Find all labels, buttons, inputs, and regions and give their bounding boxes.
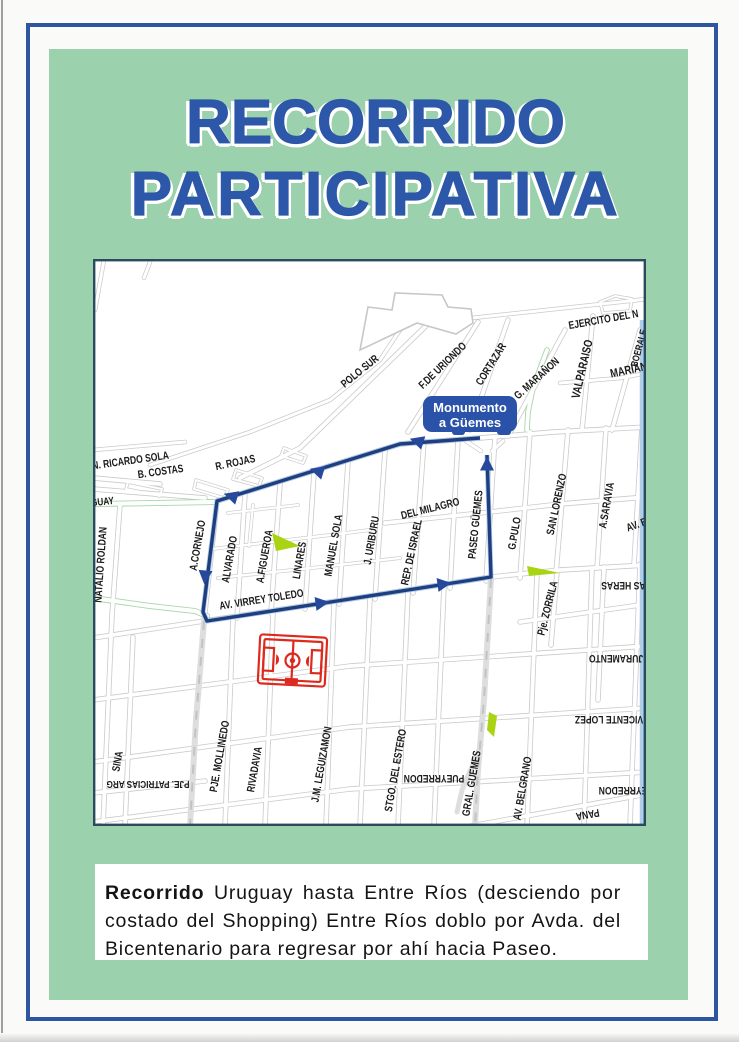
svg-text:PUEYRREDON: PUEYRREDON xyxy=(404,772,465,784)
svg-text:CORTAZAR: CORTAZAR xyxy=(474,341,510,388)
svg-text:STGO. DEL ESTERO: STGO. DEL ESTERO xyxy=(383,728,410,813)
svg-text:G. MARAÑON: G. MARAÑON xyxy=(512,356,562,403)
svg-text:VICENTE LOPEZ: VICENTE LOPEZ xyxy=(575,713,643,725)
svg-text:B. COSTAS: B. COSTAS xyxy=(137,463,185,482)
svg-text:NATALIO ROLDAN: NATALIO ROLDAN xyxy=(93,527,110,604)
svg-text:AV. BELGRANO: AV. BELGRANO xyxy=(512,755,535,821)
svg-text:A.CORNEJO: A.CORNEJO xyxy=(188,519,209,572)
svg-text:F.DE URIONDO: F.DE URIONDO xyxy=(417,340,470,392)
svg-text:PJE. PATRICIAS ARG: PJE. PATRICIAS ARG xyxy=(106,779,189,791)
svg-text:RIVADAVIA: RIVADAVIA xyxy=(245,746,265,793)
svg-text:a Güemes: a Güemes xyxy=(439,415,501,430)
svg-text:REP. DE ISRAEL: REP. DE ISRAEL xyxy=(399,518,425,586)
svg-text:Pje. ZORRILA: Pje. ZORRILA xyxy=(536,580,561,637)
svg-text:PUEYRREDON: PUEYRREDON xyxy=(599,784,646,796)
svg-text:JURAMENTO: JURAMENTO xyxy=(589,652,643,664)
svg-text:VALPARAISO: VALPARAISO xyxy=(569,339,596,400)
svg-text:LAS HERAS: LAS HERAS xyxy=(601,579,646,591)
svg-text:SINA: SINA xyxy=(110,750,126,772)
svg-text:URUGUAY: URUGUAY xyxy=(93,494,115,511)
svg-text:PASEO GÜEMES: PASEO GÜEMES xyxy=(467,489,486,559)
svg-text:Monumento: Monumento xyxy=(433,400,507,415)
